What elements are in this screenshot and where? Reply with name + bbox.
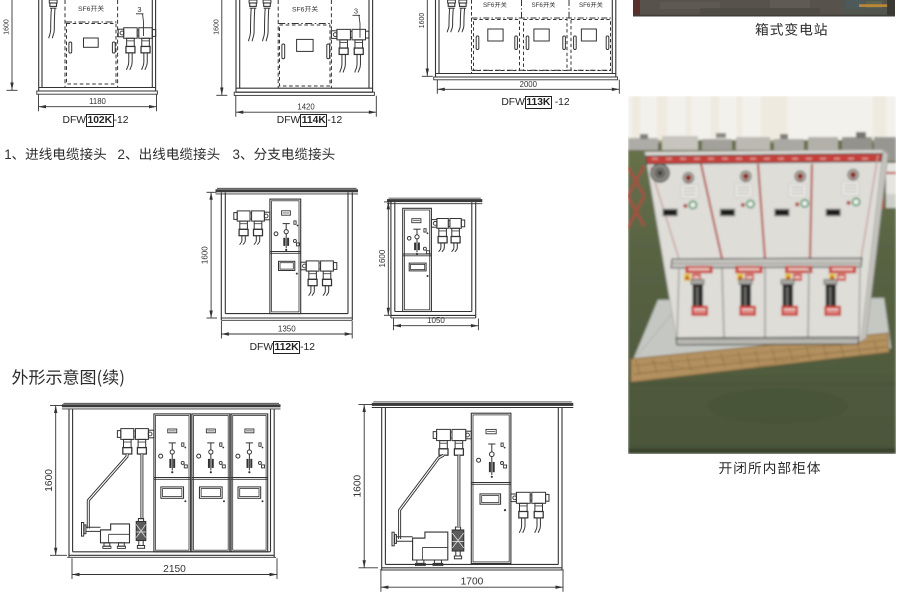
svg-text:3: 3 — [354, 7, 358, 16]
svg-text:1050: 1050 — [427, 316, 445, 325]
svg-text:1600: 1600 — [353, 474, 364, 497]
svg-text:1600: 1600 — [213, 19, 220, 35]
svg-text:3: 3 — [137, 5, 141, 14]
svg-text:SF6: SF6 — [78, 6, 91, 13]
svg-text:1: 1 — [4, 147, 11, 162]
svg-text:2000: 2000 — [520, 80, 538, 89]
svg-text:SF6: SF6 — [292, 7, 305, 14]
svg-text:1700: 1700 — [461, 577, 484, 588]
svg-text:SF6: SF6 — [532, 2, 544, 9]
svg-text:2150: 2150 — [163, 564, 186, 575]
svg-text:3: 3 — [233, 147, 240, 162]
svg-text:1420: 1420 — [297, 103, 315, 112]
svg-text:1180: 1180 — [89, 97, 106, 106]
svg-text:1600: 1600 — [378, 249, 387, 267]
svg-text:1600: 1600 — [44, 469, 55, 492]
svg-text:SF6: SF6 — [483, 2, 495, 9]
svg-text:1600: 1600 — [419, 13, 426, 29]
svg-text:1600: 1600 — [4, 19, 11, 35]
svg-text:2: 2 — [118, 147, 125, 162]
svg-text:SF6: SF6 — [579, 2, 591, 9]
svg-text:1600: 1600 — [201, 246, 210, 264]
svg-text:1350: 1350 — [278, 325, 296, 334]
